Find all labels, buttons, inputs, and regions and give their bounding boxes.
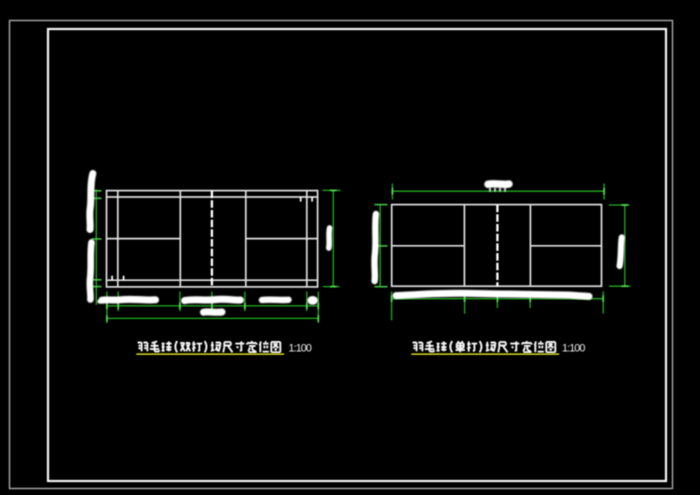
svg-text:1:100: 1:100	[289, 343, 312, 355]
svg-text:1:100: 1:100	[562, 343, 585, 355]
